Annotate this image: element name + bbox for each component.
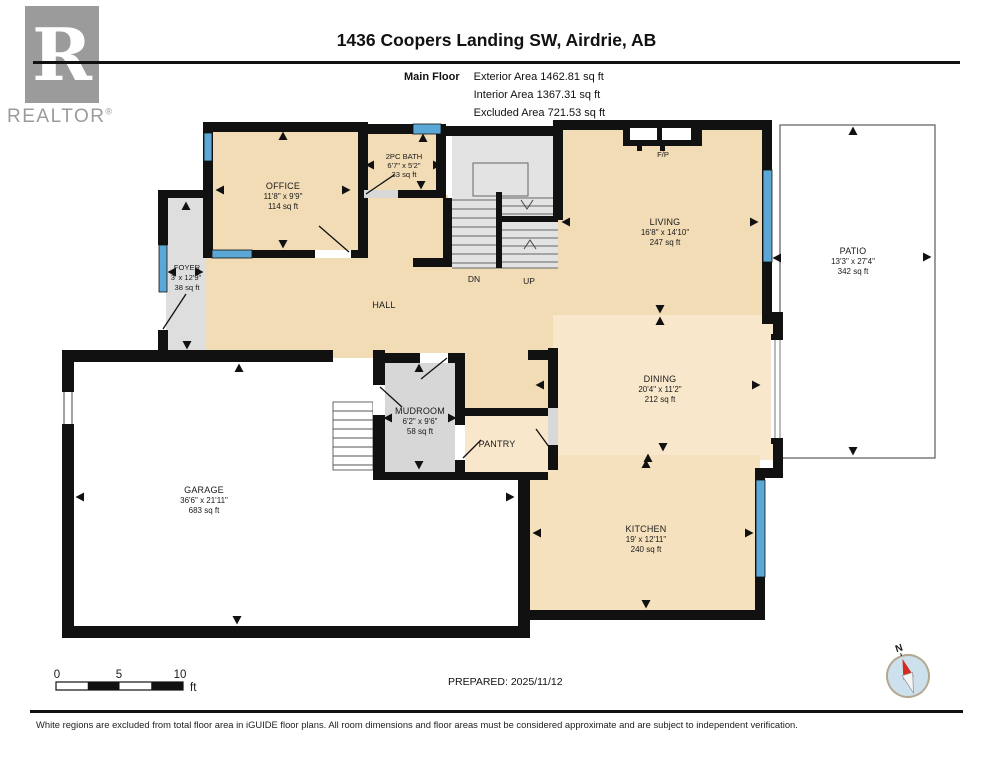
scale-bar: 0 5 10 ft (54, 669, 197, 694)
svg-text:36'6" x 21'11": 36'6" x 21'11" (180, 496, 228, 505)
realtor-logo-letter: R (32, 19, 92, 91)
prepared-date: PREPARED: 2025/11/12 (448, 676, 563, 688)
svg-text:114 sq ft: 114 sq ft (268, 202, 299, 211)
svg-text:OFFICE: OFFICE (266, 181, 300, 191)
svg-text:38 sq ft: 38 sq ft (175, 283, 201, 292)
bath-window (413, 124, 441, 134)
scale-0: 0 (54, 669, 60, 681)
header-divider (33, 61, 960, 64)
realtor-logo: R (25, 6, 99, 103)
garage-steps (333, 402, 373, 470)
svg-text:FOYER: FOYER (174, 263, 201, 272)
stair-rail-wall (496, 192, 502, 268)
svg-text:19' x 12'11": 19' x 12'11" (626, 535, 667, 544)
compass-north-label: N (894, 643, 904, 656)
svg-text:3' x 12'9": 3' x 12'9" (171, 273, 202, 282)
stair-divider-wall (502, 216, 558, 222)
kitchen-window (756, 480, 765, 577)
scale-5: 5 (116, 669, 122, 681)
svg-text:240 sq ft: 240 sq ft (631, 545, 662, 554)
living-window (763, 170, 772, 262)
svg-text:16'8" x 14'10": 16'8" x 14'10" (641, 228, 689, 237)
room-label-hall: HALL (372, 300, 395, 310)
svg-text:2PC BATH: 2PC BATH (386, 152, 423, 161)
svg-text:683 sq ft: 683 sq ft (189, 506, 220, 515)
svg-text:33 sq ft: 33 sq ft (392, 170, 418, 179)
svg-text:6'7" x 5'2": 6'7" x 5'2" (387, 161, 421, 170)
room-label-dining: DINING 20'4" x 11'2" 212 sq ft (638, 374, 681, 404)
registered-mark: ® (106, 107, 114, 117)
footer-divider (30, 710, 963, 713)
office-window (204, 133, 212, 161)
scale-10: 10 (174, 669, 187, 681)
svg-text:6'2" x 9'6": 6'2" x 9'6" (403, 417, 438, 426)
realtor-logo-wordmark: REALTOR® (7, 106, 114, 128)
floor-plan-page: R REALTOR® 1436 Coopers Landing SW, Aird… (0, 0, 993, 768)
foyer-window (159, 245, 167, 292)
office-bottom-window (212, 250, 252, 258)
disclaimer-text: White regions are excluded from total fl… (36, 719, 798, 730)
stairs-up-label: UP (523, 276, 535, 286)
patio-outline (780, 125, 935, 458)
compass-icon: N (878, 637, 935, 702)
svg-text:212 sq ft: 212 sq ft (645, 395, 676, 404)
scale-unit: ft (190, 682, 197, 694)
staircase (452, 136, 558, 268)
room-label-kitchen: KITCHEN 19' x 12'11" 240 sq ft (626, 524, 667, 554)
svg-text:342 sq ft: 342 sq ft (838, 267, 869, 276)
svg-text:GARAGE: GARAGE (184, 485, 224, 495)
svg-text:MUDROOM: MUDROOM (395, 406, 445, 416)
patio-door (771, 334, 783, 444)
office-floor (208, 127, 363, 255)
room-label-pantry: PANTRY (479, 439, 516, 449)
stairs-down-label: DN (468, 274, 480, 284)
svg-text:58 sq ft: 58 sq ft (407, 427, 434, 436)
svg-text:247 sq ft: 247 sq ft (650, 238, 681, 247)
room-label-office: OFFICE 11'8" x 9'9" 114 sq ft (264, 181, 303, 211)
svg-text:11'8" x 9'9": 11'8" x 9'9" (264, 192, 303, 201)
svg-text:PATIO: PATIO (840, 246, 867, 256)
svg-text:DINING: DINING (644, 374, 677, 384)
svg-text:13'3" x 27'4": 13'3" x 27'4" (831, 257, 875, 266)
svg-text:20'4" x 11'2": 20'4" x 11'2" (638, 385, 681, 394)
fireplace-label: F/P (657, 150, 669, 159)
svg-text:KITCHEN: KITCHEN (626, 524, 667, 534)
room-label-garage: GARAGE 36'6" x 21'11" 683 sq ft (180, 485, 228, 515)
room-label-foyer: FOYER 3' x 12'9" 38 sq ft (171, 263, 202, 292)
svg-text:LIVING: LIVING (650, 217, 681, 227)
floor-plan-drawing: OFFICE 11'8" x 9'9" 114 sq ft 2PC BATH 6… (0, 0, 993, 768)
